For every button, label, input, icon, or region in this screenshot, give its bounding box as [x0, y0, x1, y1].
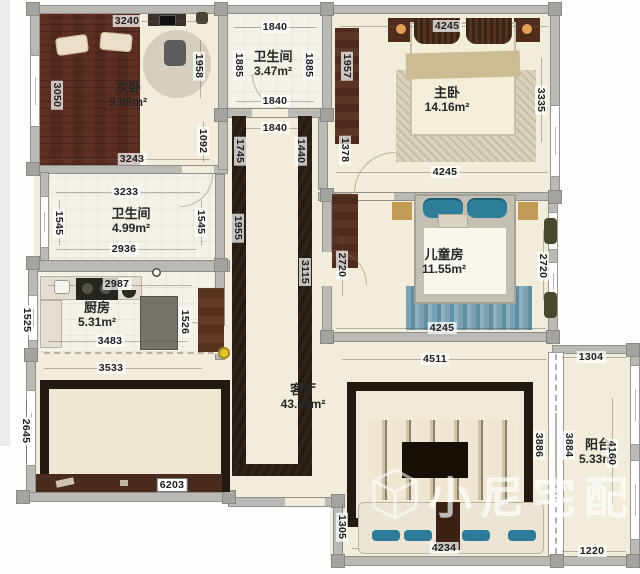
entry-marker [218, 347, 230, 359]
tv-icon [402, 442, 468, 478]
balcony-sliding-track [555, 354, 557, 554]
sink-icon [54, 280, 70, 294]
dim-hall-left-mid: 1955 [232, 214, 244, 243]
dim-kitchen-left: 1525 [21, 306, 33, 335]
wall-top-master [330, 5, 560, 14]
room-label-bathroom-mid: 卫生间 4.99m² [111, 207, 150, 235]
headboard-basket-icon [466, 18, 512, 44]
dim-bathroom-mid-right: 1545 [195, 208, 207, 237]
wall-sofa-bottom [333, 556, 557, 566]
hall-feature-wall-right [298, 116, 312, 476]
kids-bed-box [438, 214, 468, 228]
dim-second-bedroom-bottom: 3243 [118, 153, 147, 165]
window-second-bedroom [30, 55, 40, 127]
dim-dining-top: 3533 [97, 362, 126, 374]
dim-hall-right-mid: 3115 [299, 258, 311, 286]
room-area: 9.88m² [109, 95, 147, 109]
dim-kids-bottom: 4245 [428, 322, 457, 334]
wall-dining-bottom [18, 492, 230, 502]
dim-living-sofa-left: 1305 [336, 513, 348, 542]
room-label-master: 主卧 14.16m² [425, 86, 470, 114]
dim-kids-left: 2720 [336, 251, 348, 280]
dim-balcony-left: 3884 [563, 431, 575, 460]
dim-living-sofa-bottom: 4234 [430, 542, 459, 554]
dim-hall-right-top: 1440 [295, 137, 307, 166]
page-edge [0, 0, 10, 446]
wall-top-bathroom [220, 5, 330, 14]
dim-balcony-bottom: 1220 [578, 545, 607, 557]
lamp-icon [396, 24, 406, 34]
kids-pillow-icon [467, 198, 507, 218]
door-gap-passage [285, 498, 325, 506]
sofa-pillow-icon [508, 530, 536, 541]
dim-master-bottom: 4245 [431, 166, 460, 178]
kitchen-open-boundary [44, 352, 214, 354]
door-gap-master [352, 193, 394, 200]
plant-icon [196, 12, 208, 24]
dim-second-bedroom-right-top: 1958 [193, 52, 205, 81]
dim-kids-right: 2720 [537, 252, 549, 281]
fridge-cabinet [198, 288, 224, 352]
kids-nightstand-icon [518, 202, 538, 220]
room-name: 主卧 [425, 86, 470, 100]
room-label-kids: 儿童房 11.55m² [422, 248, 466, 276]
room-name: 卫生间 [111, 207, 150, 221]
dim-master-top: 4245 [433, 20, 462, 32]
room-area: 4.99m² [111, 221, 150, 235]
hall-feature-wall-left [232, 116, 246, 476]
room-area: 14.16m² [425, 100, 470, 114]
lamp-icon [522, 24, 532, 34]
sofa-pillow-icon [404, 530, 432, 541]
dim-bathroom-top-bottom: 1840 [261, 95, 290, 107]
room-area: 5.31m² [78, 315, 116, 329]
room-name: 儿童房 [422, 248, 466, 262]
dim-balcony-top: 1304 [577, 351, 606, 363]
dim-dining-bottom: 6203 [158, 479, 187, 491]
door-gap-bathroom-mid [182, 166, 214, 173]
wall-divider-bed-bath [218, 5, 228, 118]
wall-bathroom-mid-bottom [30, 260, 230, 272]
dim-bathroom-mid-bottom: 2936 [110, 243, 139, 255]
dim-master-left-top: 1957 [341, 52, 353, 81]
dim-living-tv-top: 4511 [421, 353, 449, 365]
dim-hall-passage: 1840 [261, 122, 290, 134]
sideboard-decor-icon [120, 480, 128, 486]
room-label-bathroom-top: 卫生间 3.47m² [253, 50, 292, 78]
room-name: 卫生间 [253, 50, 292, 64]
dim-second-bedroom-top: 3240 [113, 15, 142, 27]
dim-hall-left-top: 1745 [234, 137, 246, 166]
wall-hall-left-top [218, 118, 228, 170]
dim-second-bedroom-right-bottom: 1092 [197, 127, 209, 156]
room-name: 客厅 [281, 383, 326, 397]
room-name: 次卧 [109, 81, 147, 95]
dim-dining-left: 2645 [20, 417, 32, 446]
dim-living-right: 3886 [533, 431, 545, 460]
window-balcony-1 [630, 365, 640, 445]
dim-bathroom-top-top: 1840 [261, 21, 290, 33]
room-name: 厨房 [78, 301, 116, 315]
desk-chair [164, 40, 186, 66]
wall-divider-bath-master [322, 5, 332, 118]
dim-bathroom-mid-left: 1545 [53, 209, 65, 238]
room-label-kitchen: 厨房 5.31m² [78, 301, 116, 329]
dim-kitchen-right: 1526 [179, 308, 191, 337]
dim-bathroom-top-right: 1885 [303, 51, 315, 80]
dim-second-bedroom-left: 3050 [51, 81, 63, 110]
plant-icon [544, 218, 557, 244]
floor-plan: 次卧 9.88m² 卫生间 3.47m² 主卧 14.16m² 卫生间 4.99… [0, 0, 640, 574]
room-area: 3.47m² [253, 64, 292, 78]
wall-master-left-lower [318, 118, 328, 190]
window-bathroom-mid [40, 196, 49, 248]
plant-icon [544, 292, 557, 318]
sofa-pillow-icon [372, 530, 400, 541]
dim-balcony-right: 4160 [606, 439, 618, 468]
dim-bathroom-top-left: 1885 [233, 51, 245, 80]
bed-blanket [406, 51, 521, 80]
room-label-second-bedroom: 次卧 9.88m² [109, 81, 147, 109]
room-area: 43.69m² [281, 397, 326, 411]
kids-nightstand-icon [392, 202, 412, 220]
dim-kitchen-top: 2987 [103, 278, 132, 290]
room-area: 11.55m² [422, 262, 466, 276]
room-label-living: 客厅 43.69m² [281, 383, 326, 411]
pillow-icon [99, 32, 132, 53]
cup-icon [152, 268, 161, 277]
dim-bathroom-mid-top: 3233 [112, 186, 141, 198]
door-gap-kids [322, 252, 332, 286]
master-wardrobe [335, 28, 359, 144]
window-balcony-2 [630, 460, 640, 540]
hall-feature-wall-bottom [232, 464, 312, 476]
door-gap-bathroom-top [252, 109, 288, 117]
dim-kitchen-bottom: 3483 [96, 335, 125, 347]
burner-icon [82, 283, 93, 294]
sofa-pillow-icon [462, 530, 490, 541]
dim-master-left-bottom: 1378 [339, 136, 351, 165]
monitor-icon [160, 16, 175, 25]
wall-top-second-bedroom [30, 5, 220, 14]
window-master [550, 105, 560, 177]
dim-master-right: 3335 [535, 86, 547, 115]
